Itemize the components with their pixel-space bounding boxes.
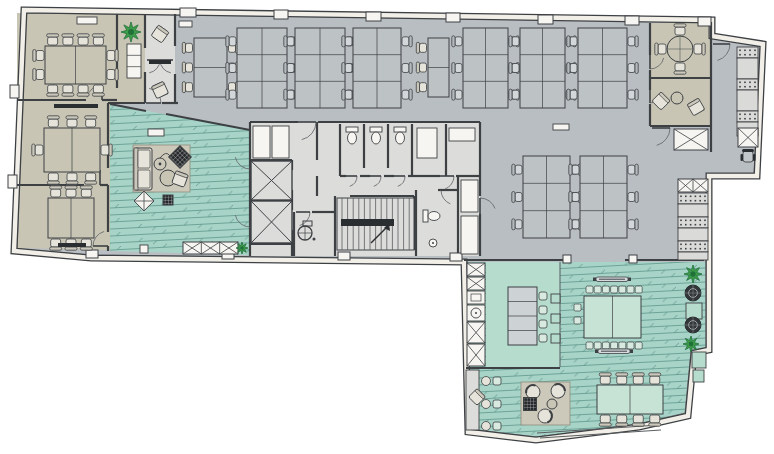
pouf-dark [163,195,173,205]
pillar [10,85,19,98]
pillar [698,17,711,26]
cabinet [674,129,708,150]
conference-table-6 [48,186,94,250]
cabinet [449,128,475,141]
bar-stool [482,400,491,409]
plant [236,242,248,254]
plant [683,336,699,352]
storage-bench [183,242,238,254]
long-cafe-table [584,296,641,338]
desk-bench [567,28,638,108]
kitchen-cabinet [467,322,485,343]
closet [272,126,289,158]
cabinet [417,128,437,158]
floor-box [140,245,148,253]
rattan-chair [685,317,701,333]
desk-bench [509,28,576,108]
console [148,129,164,136]
sink [429,239,437,247]
bar-stool [539,320,547,328]
pendant-light [593,277,631,282]
pillar [538,15,553,24]
cabinet [678,179,708,192]
shelf [461,216,478,254]
credenza [127,44,141,78]
desk-bench [342,28,412,108]
plant [121,22,141,42]
closet [253,126,270,158]
bar-stool [493,377,501,385]
pendant-light [595,349,633,354]
bar-stool [539,334,547,342]
kitchen-sink [471,308,481,318]
pillar [338,252,350,260]
coffee-table [547,399,557,409]
pillar [8,175,17,188]
shelf [461,180,478,212]
sofa [134,148,152,190]
bar-stool [539,306,547,314]
side-table [692,352,706,368]
wall-seat [551,334,560,343]
sideboard [54,104,98,108]
pillar [446,13,460,22]
side-table [686,303,702,319]
work-table [416,38,449,97]
bar-stool [482,422,491,431]
cabinet [738,128,758,147]
side-table [671,92,683,104]
pillar [629,255,637,263]
radiator [77,17,97,24]
floor-plan-drawing [0,0,774,454]
radiator [179,21,192,27]
stool-row [586,286,642,293]
kitchen-cabinet [467,263,485,276]
oven [467,291,485,304]
floor-box [553,124,569,130]
bench [149,60,171,64]
lockers [678,193,708,260]
bar-stool [493,422,501,430]
kitchen-cabinet [467,277,485,290]
elevator [251,161,292,200]
kitchen-cabinet [467,344,485,366]
pillar [274,10,288,19]
pillar [366,12,381,21]
pillar [86,250,98,258]
bar-stool [482,377,491,386]
elevator [251,201,292,243]
pillar [563,255,571,263]
bar-stool [539,292,547,300]
kitchen-island [508,287,537,345]
bar-stool [493,400,501,408]
side-table-dark [524,398,537,411]
floor-plan [0,0,774,454]
side-table [693,370,704,382]
task-chair [741,149,756,162]
plant [684,265,702,283]
pillar [450,253,462,261]
wall-seat [551,294,560,303]
staircase [337,198,414,250]
pillar [180,8,196,17]
sideboard [58,243,86,247]
desk-bench [569,156,638,238]
stool-row [586,342,642,349]
pillar [625,16,639,25]
lockers [737,47,758,136]
rattan-chair [685,285,701,301]
wall-seat [551,314,560,323]
